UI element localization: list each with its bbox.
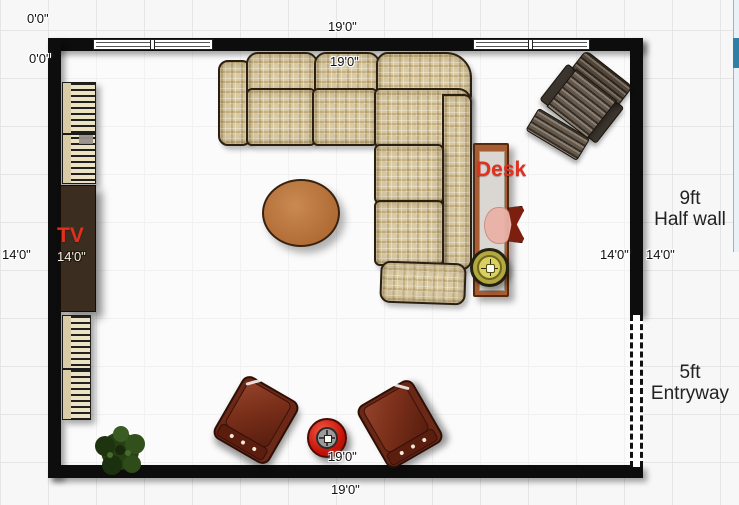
coffee-table[interactable] bbox=[262, 179, 340, 247]
sofa-seat-cushion bbox=[374, 200, 444, 266]
sofa-chaise-cushion bbox=[379, 261, 466, 306]
shelf-unit-upper[interactable] bbox=[62, 82, 96, 184]
window-mullion bbox=[150, 40, 155, 49]
entryway-note: 5ft Entryway bbox=[640, 362, 739, 404]
upholstery-button bbox=[410, 444, 415, 449]
half-wall-label: Half wall bbox=[640, 209, 739, 230]
lamp-center bbox=[486, 264, 495, 273]
window-right[interactable] bbox=[473, 39, 590, 50]
desk-chair-seat[interactable] bbox=[484, 207, 512, 244]
vertical-scrollbar[interactable] bbox=[733, 0, 739, 252]
window-left[interactable] bbox=[93, 39, 213, 50]
shelf-unit-lower[interactable] bbox=[62, 315, 91, 420]
shelf-divider bbox=[63, 368, 90, 370]
window-mullion bbox=[528, 40, 533, 49]
dim-bottom-inside: 19'0" bbox=[328, 449, 357, 464]
half-wall-note: 9ft Half wall bbox=[640, 188, 739, 230]
dim-bottom-outside: 19'0" bbox=[331, 482, 360, 497]
dim-top-outside: 19'0" bbox=[328, 19, 357, 34]
table-lamp[interactable] bbox=[470, 248, 509, 287]
sofa-seat-cushion bbox=[246, 88, 316, 146]
dim-origin-top: 0'0" bbox=[27, 11, 49, 26]
entryway-label: Entryway bbox=[640, 383, 739, 404]
upholstery-button bbox=[399, 450, 404, 455]
dim-left-outside: 14'0" bbox=[2, 247, 31, 262]
dim-top-inside: 19'0" bbox=[330, 54, 359, 69]
dim-origin-left: 0'0" bbox=[29, 51, 51, 66]
shelf-gray-patch bbox=[79, 135, 93, 144]
dim-left-inside: 14'0" bbox=[57, 249, 86, 264]
scrollbar-thumb[interactable] bbox=[733, 38, 739, 68]
upholstery-button bbox=[229, 433, 234, 438]
tv-label: TV bbox=[57, 224, 84, 248]
potted-plant[interactable] bbox=[90, 422, 150, 480]
wall-right-half-wall[interactable] bbox=[630, 38, 643, 315]
upholstery-button bbox=[240, 440, 245, 445]
sofa-seat-cushion bbox=[374, 144, 444, 204]
speaker-center bbox=[324, 435, 332, 443]
upholstery-button bbox=[252, 446, 257, 451]
sofa-back-right bbox=[442, 94, 472, 270]
entryway-size: 5ft bbox=[640, 362, 739, 383]
half-wall-size: 9ft bbox=[640, 188, 739, 209]
floor-plan-canvas: 0'0" 0'0" 19'0" 19'0" 14'0" 14'0" 14'0" … bbox=[0, 0, 739, 505]
speaker-cone bbox=[316, 427, 338, 449]
desk-label: Desk bbox=[476, 158, 526, 182]
dim-right-outside: 14'0" bbox=[646, 247, 675, 262]
upholstery-button bbox=[422, 437, 427, 442]
dim-right-inside: 14'0" bbox=[600, 247, 629, 262]
sofa-seat-cushion bbox=[312, 88, 378, 146]
